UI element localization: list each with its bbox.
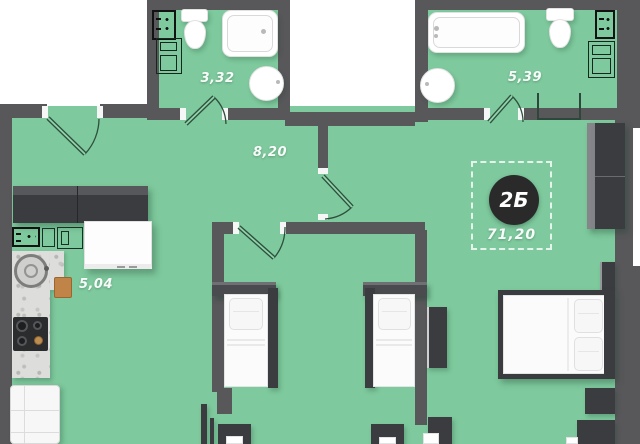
single-bed-frame [268,288,278,388]
electric-panel-icon [595,10,615,39]
jamb [42,106,48,118]
pillow [574,337,603,371]
fridge [84,221,152,269]
wall-bathroom-small-bottom-right [227,108,278,120]
panel-dash [16,233,21,235]
nightstand [585,388,615,414]
wardrobe-divider [77,186,78,223]
tv-cabinet [427,307,447,368]
floor-main-area [12,106,615,444]
wall-right-notch [633,128,640,266]
washing-machine-drawer [160,42,177,51]
burner-icon [33,321,42,330]
jamb [222,108,228,120]
jamb [180,108,186,120]
blanket-fold [376,339,412,341]
shower-screen [537,93,539,120]
chair [423,433,439,444]
cooktop-knob [34,336,43,345]
nightstand [600,262,615,290]
panel-dash [156,18,161,20]
burner-icon [16,320,28,332]
wall-bathroom-small-right [278,0,290,120]
shower-screen [579,93,581,120]
fridge-handle [117,266,125,268]
fridge-handle [129,266,137,268]
sofa-seam [11,410,59,411]
burner-icon [17,336,27,346]
wall-bathroom-large-bottom-left [428,108,487,120]
sofa [10,385,60,444]
panel-dash [16,240,21,242]
wall-bedroom-right [415,230,427,425]
wall-living-stub [318,126,328,174]
floor-plan: 3,32 5,39 8,20 5,04 2Б 71,20 [0,0,640,444]
pillow-crease [578,313,599,314]
faucet-icon [425,82,429,86]
blanket-fold [227,339,265,341]
open-door-leaf [201,404,207,444]
chair [566,437,578,444]
hallway-area-label: 8,20 [245,144,295,160]
wardrobe-divider [595,176,625,177]
shower-screen [537,118,581,120]
electric-panel-icon [152,10,176,40]
open-door-leaf-2 [210,418,214,444]
bathtub-inner [433,17,520,48]
wall-bathroom-large-left [415,0,428,122]
kitchen-sink-drain [24,264,38,278]
faucet-icon [44,266,49,271]
jamb [97,106,103,118]
wall-entry-right [100,104,147,118]
faucet-icon [276,80,280,84]
wall-bedroom-left [212,230,224,392]
bathtub [428,12,525,53]
faucet-icon [434,34,438,38]
panel-dash [599,18,604,20]
panel-dash [599,28,604,30]
jamb [233,222,239,234]
chair [226,436,243,444]
jamb [484,108,490,120]
panel-dash [156,28,161,30]
wardrobe [595,123,625,229]
wardrobe-side [587,123,595,229]
double-bed-headboard [604,293,615,376]
faucet-icon [434,26,439,31]
faucet-icon [261,29,266,34]
pillow [378,298,411,330]
panel-dots-icon [23,231,36,243]
pillow [229,298,263,330]
jamb [280,222,286,234]
kitchen-unit-inner [61,231,69,245]
bathtub-inner [227,15,273,52]
sofa-seam [11,432,59,433]
wall-hall-top-middle [285,112,415,126]
panel-dots-icon [161,14,172,36]
blanket-fold [376,344,412,346]
washing-machine-drawer [592,45,611,55]
wardrobe [13,186,148,223]
wall-bathroom-small-top [147,0,280,10]
desk [577,420,615,444]
washing-machine-drum [160,55,177,71]
pillow-crease [578,351,599,352]
kitchen-sink [14,254,48,288]
pillow [574,299,603,333]
wall-bedroom-top [283,222,425,234]
bathroom-large-area-label: 5,39 [500,69,550,85]
kitchen-area-label: 5,04 [72,276,120,292]
kitchen-unit-outline [42,228,55,247]
unit-badge: 2Б [489,175,539,225]
jamb [518,108,524,120]
pillow-crease [233,311,259,312]
blanket-fold [567,298,569,371]
electric-panel-icon [12,227,40,247]
wall-bathroom-large-right [617,0,640,125]
wall-bedroom-left-pilaster [217,388,232,414]
washing-machine-drum [592,58,611,74]
bathtub [222,10,278,57]
pillow-crease [382,311,407,312]
total-area-label: 71,20 [471,226,552,244]
jamb [318,214,328,220]
cutting-board [54,277,72,298]
wall-entry-left [0,104,47,118]
jamb [318,168,328,174]
chair [379,437,396,444]
cooktop [13,317,48,351]
blanket-fold [227,344,265,346]
wall-bathroom-large-top [415,0,640,10]
bathroom-small-area-label: 3,32 [195,70,240,86]
sofa-seam [24,386,25,443]
